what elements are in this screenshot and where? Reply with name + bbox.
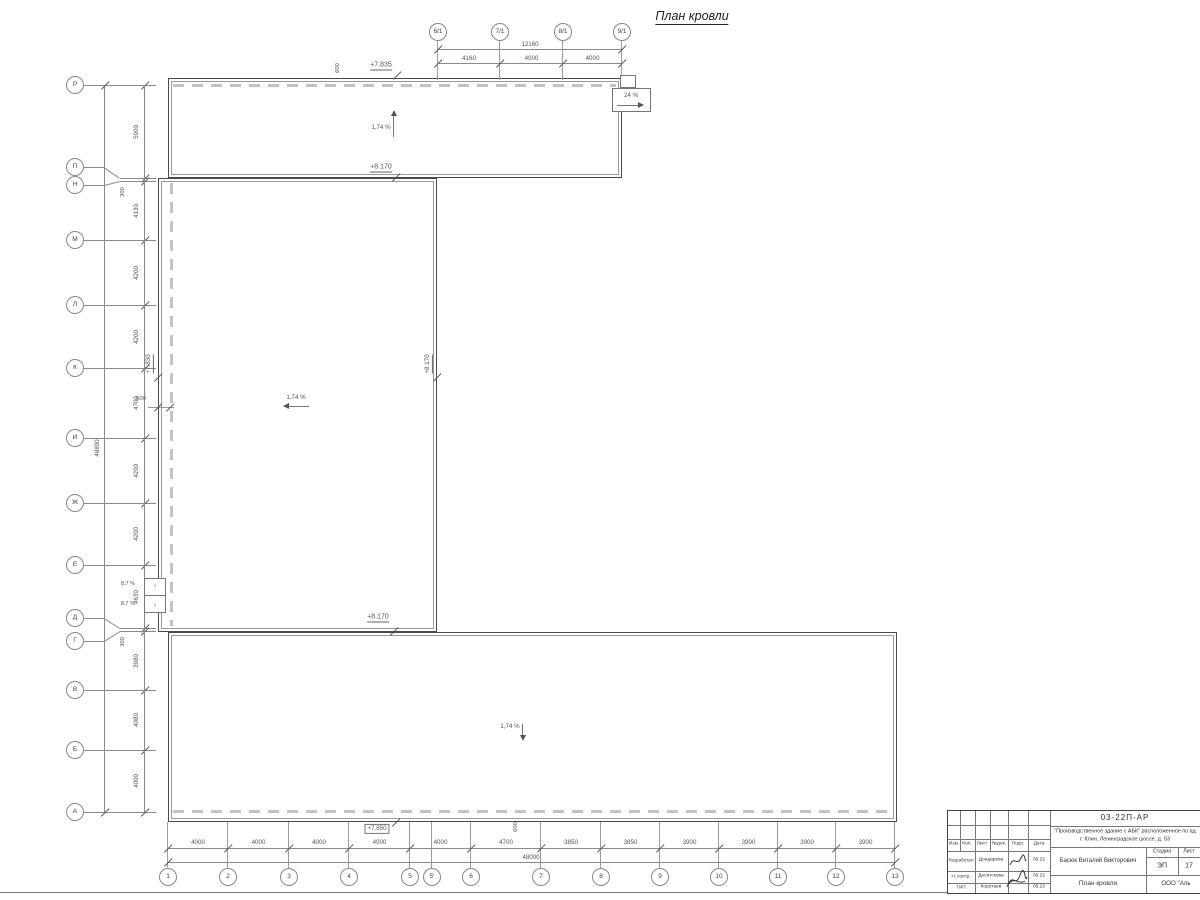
dimension-label: 3900 xyxy=(859,840,873,846)
axis-marker-Д: Д xyxy=(66,609,84,627)
tb-name-developer: Дондарева xyxy=(979,859,1004,864)
tb-line xyxy=(1050,826,1200,827)
dimension-label: 4000 xyxy=(434,840,448,846)
line xyxy=(104,631,121,642)
dimension-label: 4000 xyxy=(252,840,266,846)
line xyxy=(562,41,563,80)
tb-role-gip: ГИП xyxy=(956,886,965,891)
dimension-label: 4000 xyxy=(134,774,140,788)
dimension-label: 4000 xyxy=(312,840,326,846)
elevation-mark: +8.170 xyxy=(425,354,433,373)
elevation-mark: +8.170 xyxy=(370,164,392,173)
tb-role-developer: Разработал xyxy=(948,859,973,864)
tb-stage-value: ЭП xyxy=(1157,863,1167,870)
axis-marker-Л: Л xyxy=(66,296,84,314)
dimension-label: 3980 xyxy=(134,654,140,668)
tb-line xyxy=(1050,811,1051,893)
dimension-label: 4200 xyxy=(134,527,140,541)
tb-date-developer: 05.22 xyxy=(1033,859,1045,864)
axis-marker-6/1: 6/1 xyxy=(429,23,447,41)
drawing-canvas: План кровли Изм. Кол. Лист №док. Подп. Д… xyxy=(0,0,1200,900)
line xyxy=(104,181,120,186)
title-block: Изм. Кол. Лист №док. Подп. Дата Разработ… xyxy=(947,810,1200,894)
axis-marker-П: П xyxy=(66,158,84,176)
axis-marker-Н: Н xyxy=(66,176,84,194)
roof-block-bottom xyxy=(168,632,897,822)
axis-marker-5': 5' xyxy=(423,868,441,886)
dimension-label: 3900 xyxy=(742,840,756,846)
line xyxy=(120,178,156,179)
dimension-label: 5900 xyxy=(134,125,140,139)
dimension-label: 600 xyxy=(336,63,342,73)
dimension-label: 4200 xyxy=(134,330,140,344)
tb-col-kol: Кол. xyxy=(962,843,972,848)
axis-marker-11: 11 xyxy=(769,868,787,886)
tb-project-line2: г. Клин, Ленинградское шоссе, д. 53 xyxy=(1080,837,1170,842)
axis-marker-В: В xyxy=(66,681,84,699)
signature xyxy=(1005,869,1029,891)
axis-marker-1: 1 xyxy=(159,868,177,886)
tb-stage-label: Стадия xyxy=(1153,849,1171,854)
dimension-label: 4130 xyxy=(134,204,140,218)
tb-date-gip: 05.22 xyxy=(1033,886,1045,891)
axis-marker-10: 10 xyxy=(710,868,728,886)
axis-marker-9/1: 9/1 xyxy=(613,23,631,41)
axis-marker-4: 4 xyxy=(340,868,358,886)
axis-marker-Б: Б xyxy=(66,741,84,759)
dimension-label: 3850 xyxy=(624,840,638,846)
ramp-tab xyxy=(620,75,636,88)
line xyxy=(145,595,165,596)
arrowhead xyxy=(283,403,289,409)
line xyxy=(144,85,145,812)
elevation-mark: +7.850 xyxy=(364,824,389,834)
line xyxy=(84,167,104,168)
tb-line xyxy=(990,811,991,851)
axis-marker-А: А xyxy=(66,803,84,821)
line xyxy=(120,628,156,629)
tb-line xyxy=(1146,847,1147,893)
dimension-label: 600 xyxy=(514,822,520,832)
roof-block-top xyxy=(168,78,622,178)
axis-marker-Ж: Ж xyxy=(66,494,84,512)
dimension-label: 12160 xyxy=(521,42,538,48)
tb-sheet-value: 17 xyxy=(1185,863,1193,870)
overhang-dashed-line-bottom xyxy=(173,810,890,813)
dimension-label: 600 xyxy=(136,397,146,403)
tb-company: ООО "Аль xyxy=(1161,881,1190,887)
axis-marker-3: 3 xyxy=(280,868,298,886)
line xyxy=(499,41,500,80)
tb-col-dok: №док. xyxy=(992,843,1006,848)
dimension-label: 3850 xyxy=(564,840,578,846)
axis-marker-Г: Г xyxy=(66,632,84,650)
tb-line xyxy=(948,825,1050,826)
axis-marker-9: 9 xyxy=(651,868,669,886)
arrowhead xyxy=(638,102,644,108)
axis-marker-5: 5 xyxy=(401,868,419,886)
line xyxy=(120,181,156,182)
overhang-dashed-line-top xyxy=(173,84,616,87)
slope-label: 1,74 % xyxy=(500,724,519,730)
axis-marker-И: И xyxy=(66,429,84,447)
slope-label: 1,74 % xyxy=(371,125,390,131)
axis-marker-8/1: 8/1 xyxy=(554,23,572,41)
dimension-label: 4000 xyxy=(191,840,205,846)
tb-role-ncontr: Н. контр. xyxy=(952,875,971,880)
arrow-up-icon: ↑ xyxy=(153,584,157,591)
tb-line xyxy=(960,811,961,851)
dimension-label: 4700 xyxy=(499,840,513,846)
tb-col-izm: Изм. xyxy=(949,843,959,848)
tb-line xyxy=(948,851,1050,852)
tb-line xyxy=(1146,857,1200,858)
axis-marker-Р: Р xyxy=(66,76,84,94)
dimension-label: 300 xyxy=(121,637,127,647)
slope-label: 8,7 % xyxy=(121,602,135,608)
tb-date-ncontr: 05.22 xyxy=(1033,875,1045,880)
tb-line xyxy=(975,811,976,893)
tb-name-ncontr: Десятскова xyxy=(978,875,1003,880)
tb-col-list: Лист xyxy=(977,843,987,848)
tb-col-data: Дата xyxy=(1034,843,1045,848)
dimension-label: 4080 xyxy=(134,713,140,727)
dimension-label: 4200 xyxy=(134,464,140,478)
line xyxy=(437,41,438,80)
tb-line xyxy=(1050,847,1200,848)
tb-name-gip: Коротаев xyxy=(981,886,1002,891)
axis-marker-М: М xyxy=(66,231,84,249)
line xyxy=(104,85,105,812)
tb-sheet-label: Лист xyxy=(1183,849,1195,854)
axis-marker-2: 2 xyxy=(219,868,237,886)
tb-drawing-name: План кровли xyxy=(1079,881,1117,888)
line xyxy=(438,49,622,50)
line xyxy=(120,631,156,632)
tb-line xyxy=(948,871,1050,872)
dimension-label: 48800 xyxy=(95,439,101,456)
axis-marker-Е: Е xyxy=(66,556,84,574)
axis-marker-7/1: 7/1 xyxy=(491,23,509,41)
line xyxy=(438,63,622,64)
dimension-label: 300 xyxy=(121,187,127,197)
dimension-label: 4000 xyxy=(586,56,600,62)
line xyxy=(84,185,104,186)
tb-line xyxy=(1178,847,1179,875)
line xyxy=(168,862,895,863)
drawing-title: План кровли xyxy=(655,9,728,25)
elevation-mark: +7.835 xyxy=(370,62,392,71)
tb-author: Басюк Виталий Викторович xyxy=(1060,858,1137,864)
line xyxy=(103,618,120,629)
tb-doc-number: 03-22П-АР xyxy=(1101,814,1150,822)
tb-project-line1: "Производственное здание с АБК" располож… xyxy=(1054,829,1196,834)
slope-label: 1,74 % xyxy=(286,395,305,401)
dimension-label: 3900 xyxy=(800,840,814,846)
dimension-label: 4000 xyxy=(525,56,539,62)
arrow-down-icon: ↓ xyxy=(153,602,157,609)
line xyxy=(168,848,895,849)
dimension-label: 48000 xyxy=(522,855,539,861)
dimension-label: 3900 xyxy=(683,840,697,846)
line xyxy=(393,115,394,137)
slope-label: 24 % xyxy=(624,93,638,99)
elevation-mark: +7.830 xyxy=(146,354,154,373)
line xyxy=(84,641,104,642)
line xyxy=(103,167,120,179)
axis-marker-13: 13 xyxy=(886,868,904,886)
slope-label: 8,7 % xyxy=(121,582,135,588)
axis-marker-7: 7 xyxy=(532,868,550,886)
signature xyxy=(1009,854,1027,868)
tb-line xyxy=(948,839,1050,840)
elevation-mark: +8.170 xyxy=(367,614,389,623)
dimension-label: 4000 xyxy=(373,840,387,846)
dimension-label: 4200 xyxy=(134,266,140,280)
line xyxy=(84,618,104,619)
tb-col-podp: Подп. xyxy=(1012,843,1025,848)
axis-marker-8: 8 xyxy=(592,868,610,886)
dimension-label: 4160 xyxy=(462,56,476,62)
axis-marker-6: 6 xyxy=(462,868,480,886)
roof-block-middle xyxy=(158,178,437,632)
arrowhead xyxy=(520,735,526,741)
axis-marker-12: 12 xyxy=(827,868,845,886)
axis-marker-К: К xyxy=(66,359,84,377)
arrowhead xyxy=(391,110,397,116)
tb-line xyxy=(1050,875,1200,876)
